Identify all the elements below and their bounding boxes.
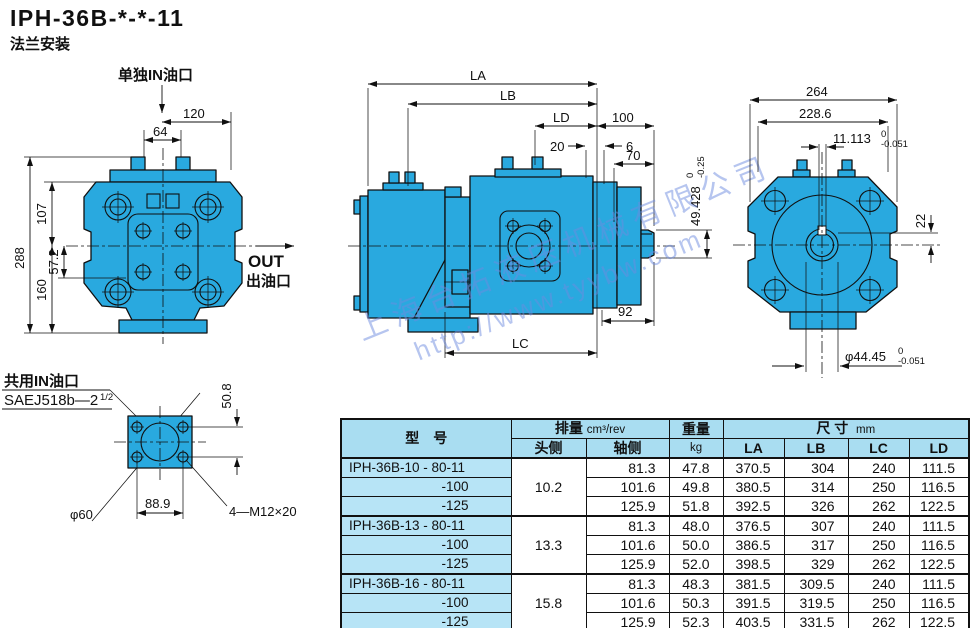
size-unit: mm [856,424,875,436]
cell-LC: 240 [848,458,909,478]
cell-LB: 331.5 [784,613,848,628]
cell-shaft-displacement: 101.6 [586,478,669,497]
side-end-plate [360,196,368,312]
dim-160: 160 [34,279,49,301]
side-view: LA LB LD 100 20 6 70 49.428 0 [348,68,791,383]
sae-spec-fraction: 1/2 [100,392,113,403]
cell-shaft-displacement: 125.9 [586,613,669,628]
table-row: -125 125.9 51.8 392.5 326 262 122.5 [341,497,969,517]
dim-LB: LB [500,88,516,103]
cell-LC: 250 [848,536,909,555]
svg-text:0: 0 [685,173,696,178]
flange-port-view: 共用IN油口 SAEJ518b—2 1/2 50.8 [2,372,297,522]
cell-head-displacement: 10.2 [511,458,586,516]
cell-weight: 50.0 [669,536,723,555]
cell-weight: 52.3 [669,613,723,628]
rear-foot [790,312,856,329]
cell-LB: 307 [784,516,848,536]
size-label: 尺 寸 [816,420,848,436]
dim-LA: LA [470,68,486,83]
dim-50-8: 50.8 [219,383,234,408]
cell-shaft-displacement: 125.9 [586,497,669,517]
col-header-weight-unit: kg [669,439,723,459]
dim-20: 20 [550,139,564,154]
cell-weight: 48.0 [669,516,723,536]
table-row: -100 101.6 49.8 380.5 314 250 116.5 [341,478,969,497]
dim-264: 264 [806,84,828,99]
cell-LC: 262 [848,497,909,517]
sae-spec-label: SAEJ518b—2 [4,392,98,409]
dim-22: 22 [913,214,928,228]
cell-LD: 116.5 [909,478,969,497]
cell-weight: 49.8 [669,478,723,497]
common-in-port-label: 共用IN油口 [4,372,79,390]
col-header-weight: 重量 [669,419,723,439]
table-row: -125 125.9 52.3 403.5 331.5 262 122.5 [341,613,969,628]
col-header-LC: LC [848,439,909,459]
dim-key-width: 11.113 [833,131,871,146]
dim-70: 70 [626,148,640,163]
cell-model: -125 [341,497,511,517]
table-header-row: 型 号 排量 cm³/rev 重量 尺 寸 mm [341,419,969,439]
cell-LA: 376.5 [723,516,784,536]
cell-head-displacement: 13.3 [511,516,586,574]
dim-57-2: 57.2 [46,249,61,274]
dim-phi-60: φ60 [70,507,93,522]
cell-shaft-displacement: 81.3 [586,516,669,536]
cell-LD: 122.5 [909,497,969,517]
cell-LC: 240 [848,574,909,594]
cell-LC: 250 [848,478,909,497]
out-label: OUT [248,252,285,271]
cell-LB: 309.5 [784,574,848,594]
table-row: -125 125.9 52.0 398.5 329 262 122.5 [341,555,969,575]
cell-LD: 111.5 [909,516,969,536]
cell-model: IPH-36B-10 - 80-11 [341,458,511,478]
cell-LC: 262 [848,555,909,575]
dim-LD: LD [553,110,570,125]
cell-model: -125 [341,555,511,575]
dim-shaft-diameter: φ44.45 [845,349,886,364]
cell-LB: 304 [784,458,848,478]
front-top-bolt [131,157,145,170]
displacement-unit: cm³/rev [587,424,625,436]
cell-LA: 386.5 [723,536,784,555]
cell-LC: 250 [848,594,909,613]
cell-shaft-displacement: 101.6 [586,536,669,555]
dim-LC: LC [512,336,529,351]
cell-model: -100 [341,594,511,613]
table-row: IPH-36B-13 - 80-11 13.3 81.3 48.0 376.5 … [341,516,969,536]
table-row: IPH-36B-16 - 80-11 15.8 81.3 48.3 381.5 … [341,574,969,594]
out-label-cn: 出油口 [246,272,291,290]
bolt-spec-label: 4—M12×20 [229,504,297,519]
cell-LB: 329 [784,555,848,575]
cell-shaft-displacement: 81.3 [586,574,669,594]
catalog-page: IPH-36B-*-*-11 法兰安装 单独IN油口 120 64 [0,0,976,628]
front-in-port-label: 单独IN油口 [118,66,193,84]
dim-64: 64 [153,124,167,139]
cell-LB: 314 [784,478,848,497]
table-row: IPH-36B-10 - 80-11 10.2 81.3 47.8 370.5 … [341,458,969,478]
dim-107: 107 [34,203,49,225]
cell-LD: 111.5 [909,458,969,478]
cell-LB: 317 [784,536,848,555]
dim-288: 288 [12,247,27,269]
cell-model: -100 [341,478,511,497]
col-header-displacement: 排量 cm³/rev [511,419,669,439]
front-top-bolt [176,157,190,170]
cell-LA: 398.5 [723,555,784,575]
cell-LD: 122.5 [909,613,969,628]
cell-LD: 122.5 [909,555,969,575]
cell-shaft-displacement: 81.3 [586,458,669,478]
cell-head-displacement: 15.8 [511,574,586,628]
cell-model: -125 [341,613,511,628]
table-row: -100 101.6 50.0 386.5 317 250 116.5 [341,536,969,555]
cell-shaft-displacement: 125.9 [586,555,669,575]
table-row: -100 101.6 50.3 391.5 319.5 250 116.5 [341,594,969,613]
dim-92: 92 [618,304,632,319]
cell-LC: 262 [848,613,909,628]
dim-228-6: 228.6 [799,106,832,121]
cell-model: IPH-36B-16 - 80-11 [341,574,511,594]
cell-LA: 380.5 [723,478,784,497]
dim-88-9: 88.9 [145,496,170,511]
cell-model: IPH-36B-13 - 80-11 [341,516,511,536]
cell-weight: 48.3 [669,574,723,594]
cell-LB: 319.5 [784,594,848,613]
dim-100: 100 [612,110,634,125]
front-view: 单独IN油口 120 64 [12,66,294,344]
col-header-shaft-side: 轴侧 [586,439,669,459]
cell-weight: 52.0 [669,555,723,575]
svg-text:-0.051: -0.051 [898,356,925,367]
rear-view: 264 228.6 11.113 0 -0.051 22 φ44.45 0 -0… [733,84,941,378]
col-header-LB: LB [784,439,848,459]
col-header-LA: LA [723,439,784,459]
cell-LA: 392.5 [723,497,784,517]
cell-LD: 116.5 [909,594,969,613]
dim-120: 120 [183,106,205,121]
col-header-model: 型 号 [341,419,511,458]
cell-LD: 111.5 [909,574,969,594]
col-header-head-side: 头侧 [511,439,586,459]
cell-LB: 326 [784,497,848,517]
col-header-size: 尺 寸 mm [723,419,969,439]
cell-weight: 50.3 [669,594,723,613]
cell-LA: 391.5 [723,594,784,613]
cell-weight: 47.8 [669,458,723,478]
cell-model: -100 [341,536,511,555]
cell-LC: 240 [848,516,909,536]
svg-text:-0.051: -0.051 [881,139,908,150]
cell-LA: 381.5 [723,574,784,594]
displacement-label: 排量 [555,420,583,436]
dimension-table: 型 号 排量 cm³/rev 重量 尺 寸 mm 头侧 轴侧 kg LA LB … [340,418,970,628]
cell-LA: 403.5 [723,613,784,628]
rear-pump-body [748,177,897,312]
col-header-LD: LD [909,439,969,459]
cell-shaft-displacement: 101.6 [586,594,669,613]
cell-LD: 116.5 [909,536,969,555]
cell-weight: 51.8 [669,497,723,517]
cell-LA: 370.5 [723,458,784,478]
